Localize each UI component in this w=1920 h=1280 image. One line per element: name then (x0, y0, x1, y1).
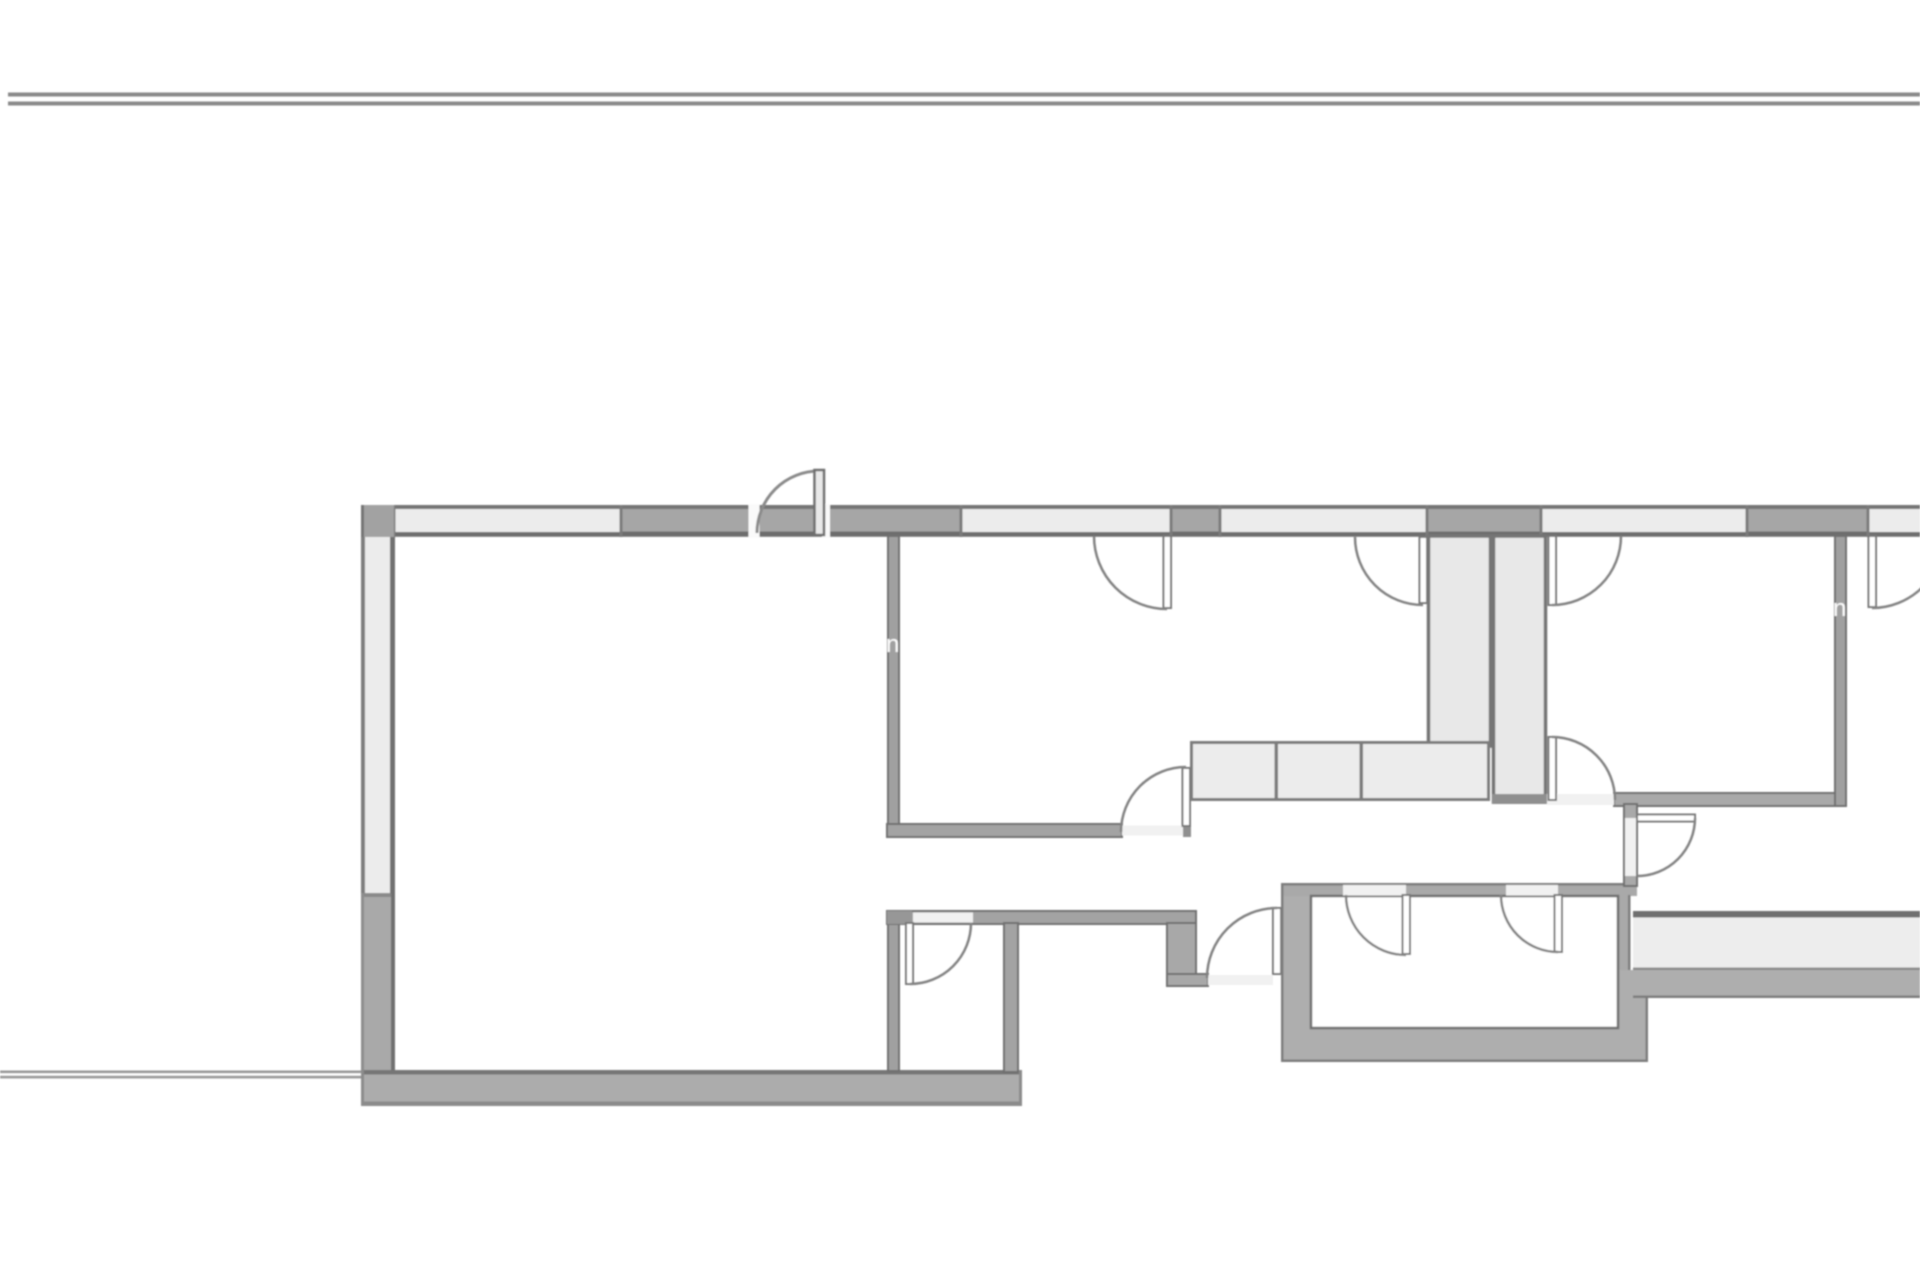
svg-text:n: n (1833, 595, 1846, 622)
svg-text:n: n (886, 631, 899, 658)
